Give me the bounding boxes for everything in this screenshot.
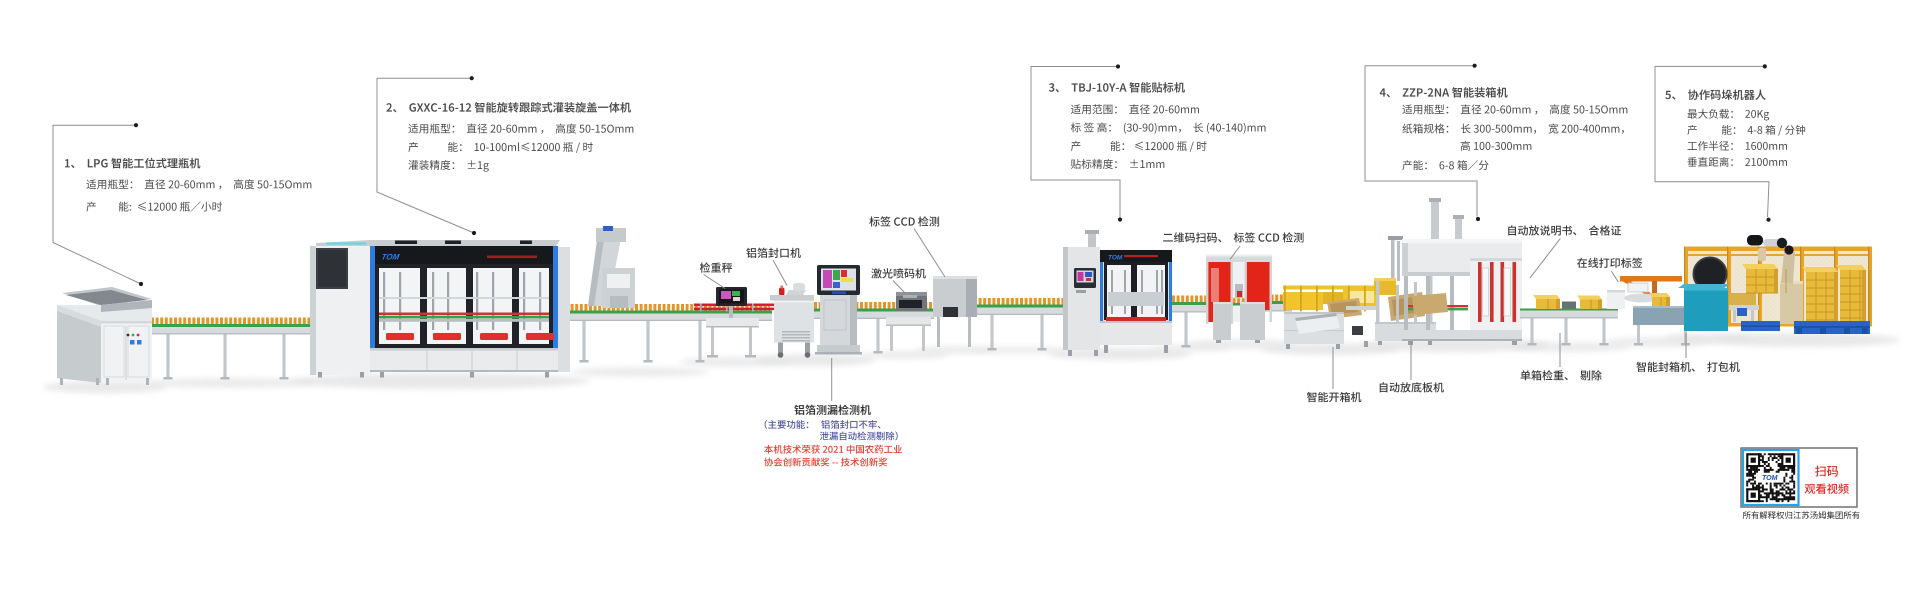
- svg-text:TOM: TOM: [381, 253, 401, 262]
- svg-text:TOM: TOM: [1108, 255, 1123, 262]
- svg-text:TOM: TOM: [1762, 475, 1778, 482]
